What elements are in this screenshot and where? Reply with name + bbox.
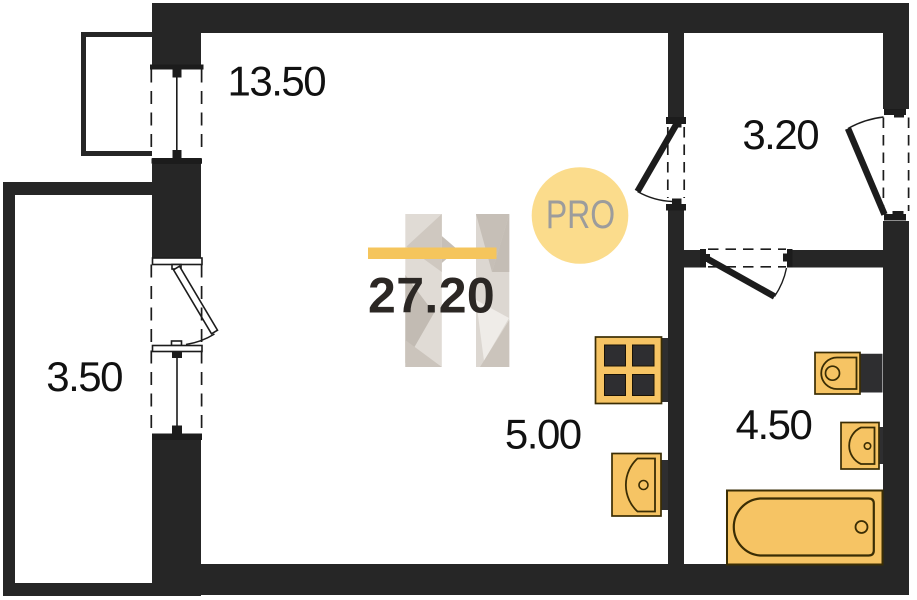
svg-text:4.50: 4.50 (736, 401, 812, 448)
svg-text:13.50: 13.50 (227, 58, 325, 105)
svg-text:3.50: 3.50 (46, 353, 122, 400)
svg-text:5.00: 5.00 (505, 411, 581, 458)
svg-text:PRO: PRO (546, 192, 615, 237)
svg-text:27.20: 27.20 (368, 268, 495, 324)
svg-text:3.20: 3.20 (742, 111, 818, 158)
